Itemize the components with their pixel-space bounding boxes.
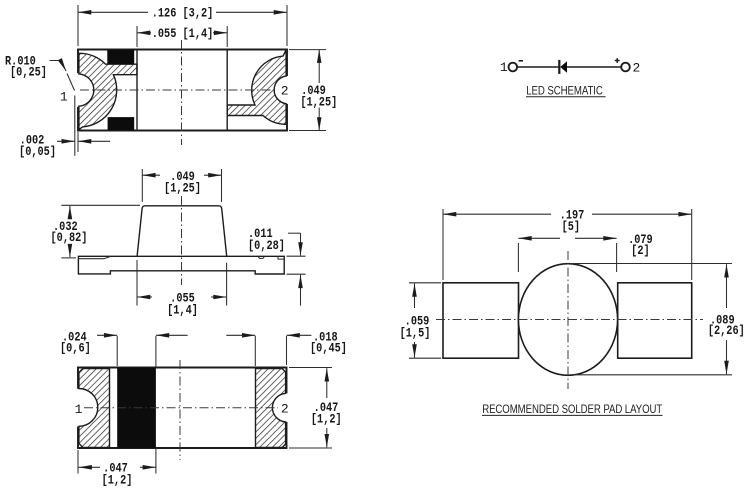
svg-text:[0,6]: [0,6]	[60, 340, 91, 356]
svg-text:.055 [1,4]: .055 [1,4]	[152, 26, 214, 42]
svg-text:[0,28]: [0,28]	[248, 238, 285, 254]
svg-text:[1,4]: [1,4]	[167, 302, 198, 318]
svg-text:1: 1	[75, 402, 83, 417]
svg-text:[1,5]: [1,5]	[400, 325, 431, 341]
svg-text:[2]: [2]	[631, 243, 649, 259]
svg-text:LED SCHEMATIC: LED SCHEMATIC	[526, 86, 603, 98]
svg-text:[0,45]: [0,45]	[310, 340, 347, 356]
svg-text:[2,26]: [2,26]	[708, 323, 745, 339]
svg-text:[1,2]: [1,2]	[102, 472, 133, 488]
svg-text:[0,25]: [0,25]	[10, 64, 47, 80]
svg-text:1: 1	[500, 60, 508, 75]
svg-text:[1,2]: [1,2]	[311, 411, 342, 427]
svg-text:[1,25]: [1,25]	[164, 180, 201, 196]
svg-text:[5]: [5]	[562, 219, 580, 235]
svg-text:[0,05]: [0,05]	[19, 144, 56, 160]
svg-text:2: 2	[632, 60, 639, 75]
svg-text:2: 2	[281, 84, 288, 99]
svg-text:[1,25]: [1,25]	[300, 94, 337, 110]
svg-text:[0,82]: [0,82]	[51, 230, 88, 246]
svg-text:1: 1	[60, 89, 68, 104]
svg-text:2: 2	[281, 402, 288, 417]
svg-text:RECOMMENDED SOLDER PAD LAYOUT: RECOMMENDED SOLDER PAD LAYOUT	[482, 404, 662, 416]
svg-text:.126 [3,2]: .126 [3,2]	[152, 6, 214, 22]
